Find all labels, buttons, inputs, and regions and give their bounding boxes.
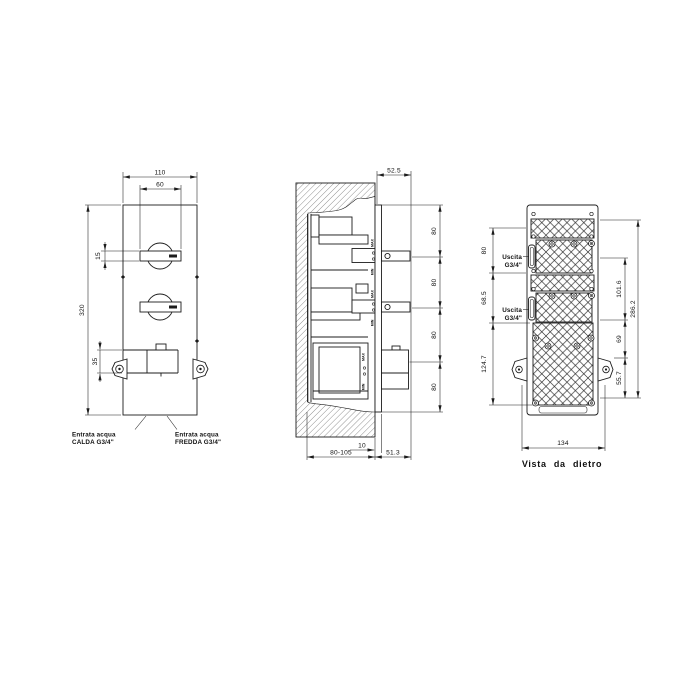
outlet1-label-line2: G3/4"	[505, 262, 522, 269]
front-ear-right	[193, 359, 208, 379]
cold-inlet-label-line2: FREDDA G3/4"	[175, 439, 221, 446]
dim-recess-depth-label: 80-105	[330, 450, 352, 457]
outlet2-label-line2: G3/4"	[505, 315, 522, 322]
hot-inlet-label-line2: CALDA G3/4"	[72, 439, 114, 446]
dim-spacing-4-label: 80	[431, 383, 438, 391]
dim-plate-thickness-label: 10	[358, 443, 366, 450]
drawing-canvas: 110 60 320 15	[0, 0, 700, 700]
dim-front-handle-thickness-label: 15	[95, 252, 102, 260]
front-inlet-labels: Entrata acqua CALDA G3/4" Entrata acqua …	[72, 416, 221, 446]
dim-spacing-2-label: 80	[431, 279, 438, 287]
min-mark-2: MIN	[371, 319, 375, 326]
dim-side-protrusion-top-label: 52.5	[387, 168, 401, 175]
dim-spacing-3-label: 80	[431, 331, 438, 339]
dim-outlets-span-label: 101.6	[616, 280, 623, 298]
dim-front-height-label: 320	[79, 304, 86, 316]
dim-back-width-label: 134	[557, 440, 569, 447]
side-handle-top	[382, 251, 411, 261]
outlet1-label-line1: Uscita	[502, 254, 522, 261]
side-front-plate	[375, 205, 382, 412]
outlet-labels: Uscita G3/4" Uscita G3/4"	[502, 254, 529, 322]
dim-outlet-spacing-label: 68.5	[481, 291, 488, 305]
side-handle-bottom	[382, 302, 411, 312]
dim-front-inlet-height-label: 35	[92, 358, 99, 366]
dim-front-handle-width-label: 60	[156, 182, 164, 189]
max-mark-3: MAX	[362, 352, 366, 361]
back-ear-right	[598, 358, 613, 381]
min-mark-3: MIN	[362, 383, 366, 390]
outlet-slot-2	[529, 297, 536, 320]
cold-inlet-label-line1: Entrata acqua	[175, 432, 219, 439]
side-section-view: MAX MIN MAX MIN MAX MIN 52.5	[296, 168, 443, 461]
dim-ear-to-bottom-label: 55.7	[616, 371, 623, 385]
dim-lower-section-label: 124.7	[481, 355, 488, 373]
back-view-caption: Vista da dietro	[522, 459, 602, 469]
dim-front-height: 320	[79, 205, 121, 415]
outlet-slot-1	[529, 245, 536, 268]
back-view: 80 68.5 124.7 Uscita G3/4" Uscita G3/4" …	[481, 205, 641, 469]
dim-side-protrusion-top: 52.5	[377, 168, 411, 461]
max-mark-1: MAX	[371, 238, 375, 247]
side-diverter-knob	[382, 346, 409, 389]
front-view: 110 60 320 15	[72, 170, 221, 447]
dim-outlet-top-offset-label: 80	[481, 247, 488, 255]
dim-front-protrusion-label: 51.3	[386, 450, 400, 457]
min-mark-1: MIN	[371, 268, 375, 275]
outlet2-label-line1: Uscita	[502, 307, 522, 314]
dim-spacing-1-label: 80	[431, 227, 438, 235]
back-ear-left	[512, 358, 527, 381]
dim-total-height-label: 286.2	[630, 300, 637, 318]
max-mark-2: MAX	[371, 289, 375, 298]
front-ear-left	[112, 359, 127, 379]
hot-inlet-label-line1: Entrata acqua	[72, 432, 116, 439]
back-grates	[531, 219, 594, 405]
dim-front-width-label: 110	[154, 170, 165, 177]
dim-ear-offset-label: 69	[616, 335, 623, 343]
technical-drawing-page: 110 60 320 15	[0, 0, 700, 700]
